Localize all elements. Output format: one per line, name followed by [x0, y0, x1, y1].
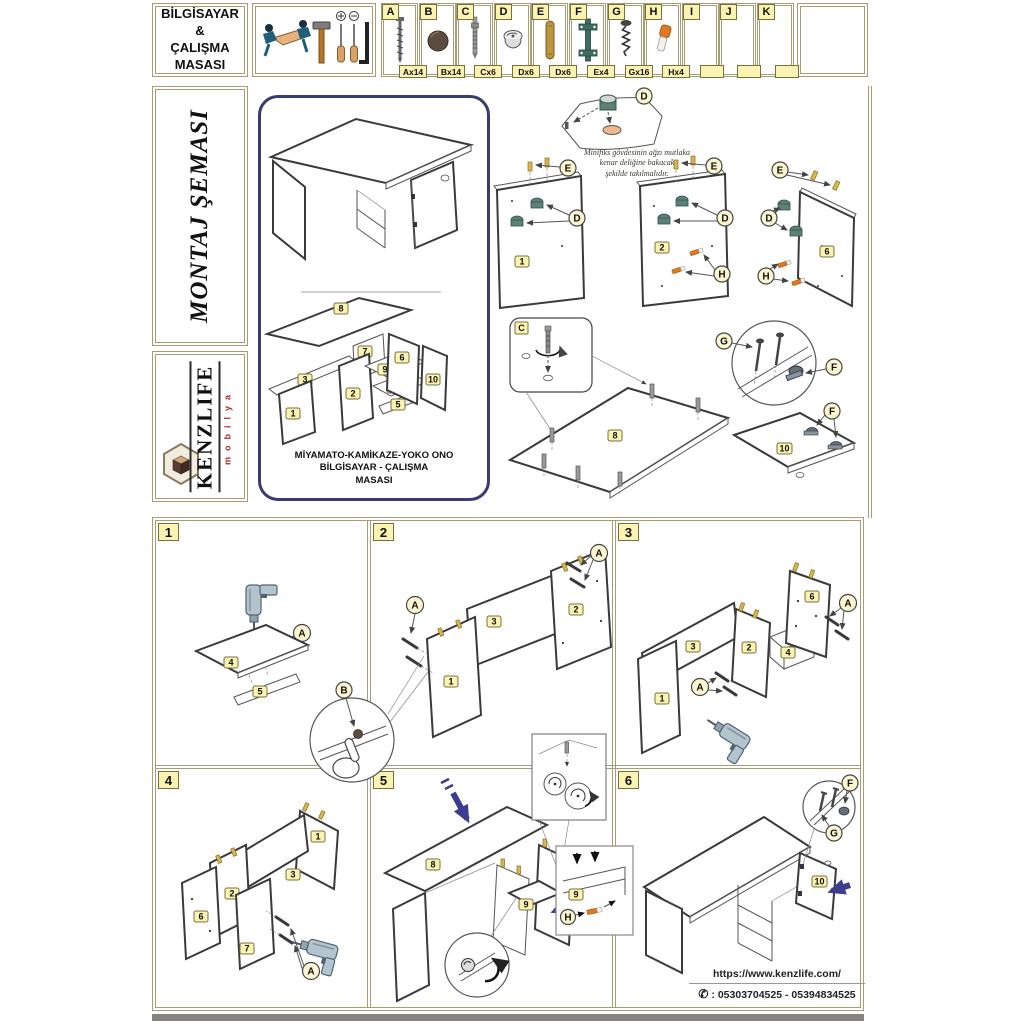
step-4-drawing: 1 3 2 6 7 A [156, 769, 367, 1003]
step-3-drawing: 3 1 2 4 6 A A [616, 521, 858, 765]
svg-text:2: 2 [746, 643, 751, 653]
svg-text:3: 3 [491, 617, 496, 627]
tools-illustration [257, 8, 373, 74]
cam-graphic [790, 226, 802, 236]
svg-text:2: 2 [659, 243, 664, 253]
step-number-6: 6 [618, 771, 639, 789]
confirmat-screw-icon [386, 14, 414, 66]
svg-text:G: G [830, 829, 838, 840]
svg-text:6: 6 [809, 592, 814, 602]
brand-subtitle: mobilya [222, 361, 232, 492]
svg-text:1: 1 [448, 677, 453, 687]
svg-text:6: 6 [824, 247, 829, 257]
svg-text:4: 4 [228, 658, 233, 668]
hardware-qty: Dx6 [512, 65, 540, 78]
flat-screwdriver-icon [350, 12, 359, 63]
hammer-icon [313, 22, 330, 63]
svg-text:F: F [829, 407, 835, 418]
svg-text:1: 1 [659, 694, 664, 704]
bolt-detail-and-top-panel-drawing: C 8 [500, 310, 735, 502]
hardware-qty [700, 65, 724, 78]
cam-graphic [676, 196, 688, 206]
hardware-letter: J [720, 4, 737, 20]
phone-icon: ✆ [698, 987, 708, 1001]
svg-text:A: A [844, 599, 851, 610]
sheet-bottom-edge [152, 1014, 864, 1021]
chipboard-screw-icon [612, 14, 640, 66]
hardware-qty: Dx6 [549, 65, 577, 78]
hardware-letter: C [457, 4, 474, 20]
hardware-qty: Hx4 [662, 65, 690, 78]
product-name: MİYAMATO-KAMİKAZE-YOKO ONO BİLGİSAYAR - … [261, 450, 487, 488]
assembly-steps-grid: 1 2 3 4 5 6 A 4 5 3 1 [152, 517, 864, 1011]
page-title-text: BİLGİSAYAR & ÇALIŞMA MASASI [161, 6, 239, 74]
svg-text:E: E [711, 162, 718, 173]
hardware-letter: I [683, 4, 700, 20]
svg-text:A: A [595, 549, 602, 560]
phone-numbers-text: : 05303704525 - 05394834525 [711, 989, 855, 1001]
hardware-cell-j: J [719, 3, 756, 77]
svg-text:10: 10 [428, 375, 438, 385]
page-title: BİLGİSAYAR & ÇALIŞMA MASASI [152, 3, 248, 77]
hardware-letter: E [532, 4, 549, 20]
svg-text:D: D [765, 214, 772, 225]
sheet: BİLGİSAYAR & ÇALIŞMA MASASI A [150, 0, 882, 1024]
hardware-letter: G [608, 4, 625, 20]
website-url: https://www.kenzlife.com/ [689, 968, 865, 984]
svg-text:A: A [696, 683, 703, 694]
phillips-screwdriver-icon [337, 12, 346, 63]
svg-text:H: H [564, 913, 571, 924]
panel-fittings-drawing: E D 1 E D H 2 E D [482, 156, 870, 322]
hardware-qty: Gx16 [625, 65, 653, 78]
cover-cap-graphic [354, 730, 363, 739]
cam-graphic [511, 216, 523, 226]
montaj-semasi-box: MONTAJ ŞEMASI [152, 86, 248, 346]
assembled-desk-drawing [261, 102, 483, 288]
svg-text:6: 6 [198, 912, 203, 922]
hardware-cell-k: K [757, 3, 794, 77]
cover-cap-icon [424, 14, 452, 66]
svg-text:D: D [721, 214, 728, 225]
svg-text:1: 1 [519, 257, 524, 267]
hardware-qty: Ax14 [399, 65, 427, 78]
shelf-pin-inset-overlay: 9 H [555, 845, 635, 937]
hardware-letter: K [758, 4, 775, 20]
svg-text:7: 7 [244, 944, 249, 954]
svg-text:G: G [720, 337, 728, 348]
hardware-qty [737, 65, 761, 78]
cap-press-detail-overlay: B [300, 640, 430, 798]
svg-text:4: 4 [785, 648, 790, 658]
hardware-letter: B [420, 4, 437, 20]
svg-text:5: 5 [257, 687, 262, 697]
svg-text:D: D [640, 92, 647, 103]
minifix-bolt-icon [461, 14, 489, 66]
shelf-pin-graphic [778, 260, 792, 268]
cam-graphic [658, 214, 670, 224]
hardware-qty: Cx6 [474, 65, 502, 78]
svg-text:9: 9 [573, 890, 578, 900]
svg-text:2: 2 [350, 389, 355, 399]
step-number-1: 1 [158, 523, 179, 541]
hardware-letter: D [495, 4, 512, 20]
montaj-semasi-label: MONTAJ ŞEMASI [186, 109, 214, 323]
allen-key-icon [359, 22, 367, 62]
wooden-dowel-icon [536, 14, 564, 66]
svg-text:8: 8 [612, 431, 617, 441]
footer: https://www.kenzlife.com/ ✆: 05303704525… [689, 968, 865, 1001]
svg-text:6: 6 [399, 353, 404, 363]
svg-text:E: E [565, 164, 572, 175]
blue-down-arrow [453, 793, 467, 819]
svg-text:F: F [831, 363, 837, 374]
svg-text:5: 5 [395, 400, 400, 410]
svg-text:E: E [777, 166, 784, 177]
svg-text:3: 3 [690, 642, 695, 652]
brand-lockup: KENZLIFE mobilya [189, 361, 232, 492]
minifix-cam-icon [499, 14, 527, 66]
svg-text:F: F [847, 779, 853, 790]
svg-text:H: H [762, 272, 769, 283]
brand-name: KENZLIFE [189, 361, 220, 492]
svg-text:C: C [518, 323, 525, 333]
hinge-detail-and-door-drawing: G F 10 F [712, 315, 870, 502]
svg-text:A: A [411, 601, 418, 612]
step-number-2: 2 [373, 523, 394, 541]
hardware-letter: F [570, 4, 587, 20]
svg-text:H: H [718, 270, 725, 281]
svg-text:A: A [298, 629, 305, 640]
svg-text:1: 1 [290, 409, 295, 419]
hardware-letter: H [645, 4, 662, 20]
svg-text:1: 1 [315, 832, 320, 842]
svg-text:A: A [307, 967, 314, 978]
svg-text:2: 2 [229, 889, 234, 899]
minifix-cam-graphic [600, 95, 616, 110]
step-number-4: 4 [158, 771, 179, 789]
svg-text:3: 3 [290, 870, 295, 880]
hardware-cell-a: A Ax14 [381, 3, 418, 77]
svg-text:9: 9 [523, 900, 528, 910]
step-number-3: 3 [618, 523, 639, 541]
cam-graphic [531, 198, 543, 208]
hardware-qty: Bx14 [437, 65, 465, 78]
svg-text:2: 2 [573, 605, 578, 615]
hardware-qty: Ex4 [587, 65, 615, 78]
assembly-instruction-sheet: { "header": { "title": "BİLGİSAYAR\n&\nÇ… [0, 0, 1024, 1024]
shelf-pin-icon [649, 14, 677, 66]
hardware-letter: A [382, 4, 399, 20]
brand-box: KENZLIFE mobilya [152, 351, 248, 502]
svg-text:B: B [340, 686, 347, 697]
svg-text:D: D [573, 214, 580, 225]
hardware-cell-empty [797, 3, 868, 77]
svg-text:8: 8 [338, 304, 343, 314]
hardware-qty [775, 65, 799, 78]
tools-illustration-box [252, 3, 376, 77]
phone-numbers: ✆: 05303704525 - 05394834525 [689, 987, 865, 1001]
hinge-icon [574, 14, 602, 66]
product-overview-box: 8 3 1 7 2 9 4 5 6 10 MİYAMATO-KAMİKAZE-Y… [258, 95, 490, 501]
svg-text:10: 10 [814, 877, 824, 887]
svg-text:8: 8 [430, 860, 435, 870]
svg-text:10: 10 [779, 444, 789, 454]
exploded-view-drawing: 8 3 1 7 2 9 4 5 6 10 [261, 294, 483, 444]
